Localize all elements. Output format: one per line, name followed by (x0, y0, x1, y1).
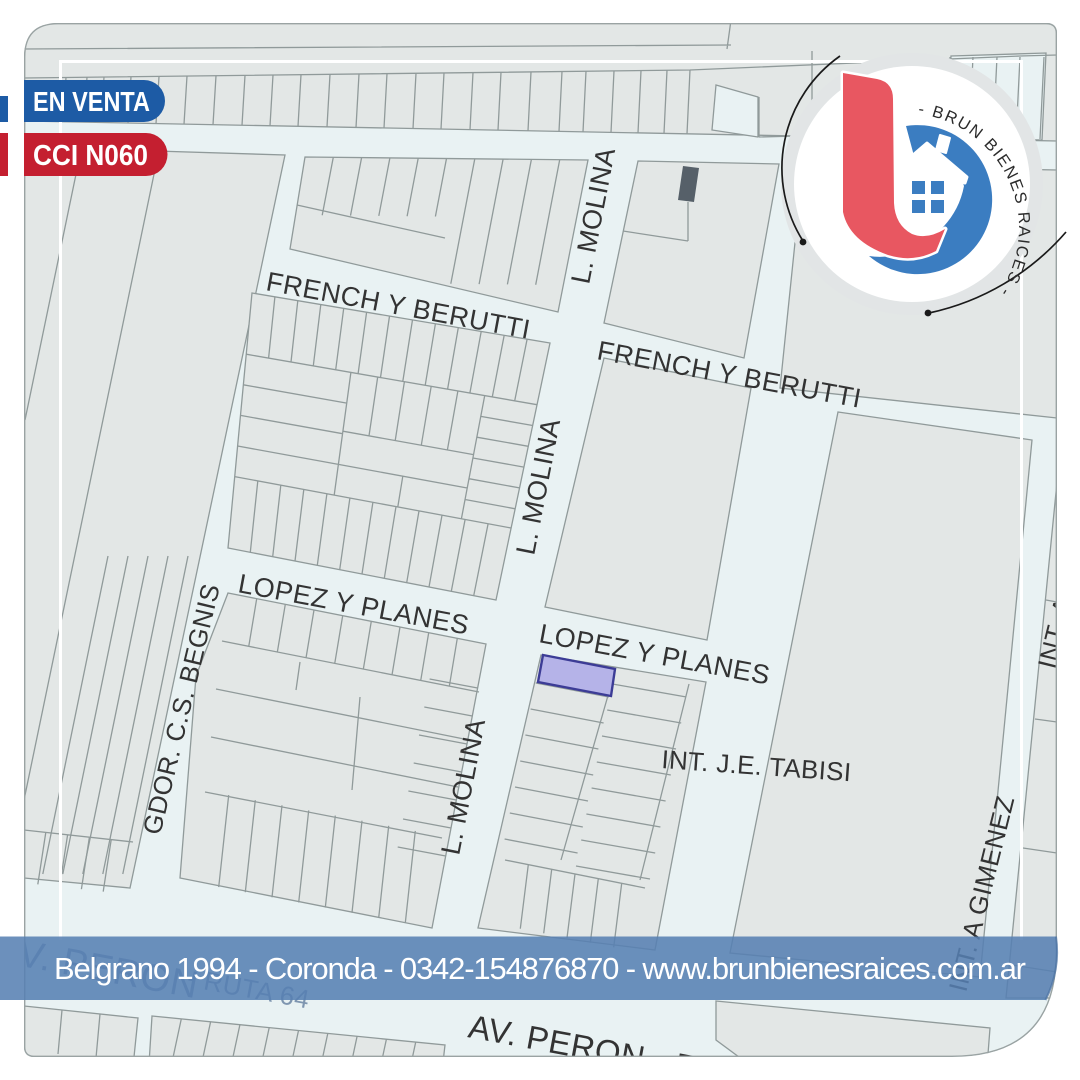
svg-text:Belgrano 1994 - Coronda - 0342: Belgrano 1994 - Coronda - 0342-154876870… (54, 951, 1026, 986)
svg-text:EN VENTA: EN VENTA (33, 86, 150, 117)
svg-text:CCI N060: CCI N060 (33, 140, 148, 172)
